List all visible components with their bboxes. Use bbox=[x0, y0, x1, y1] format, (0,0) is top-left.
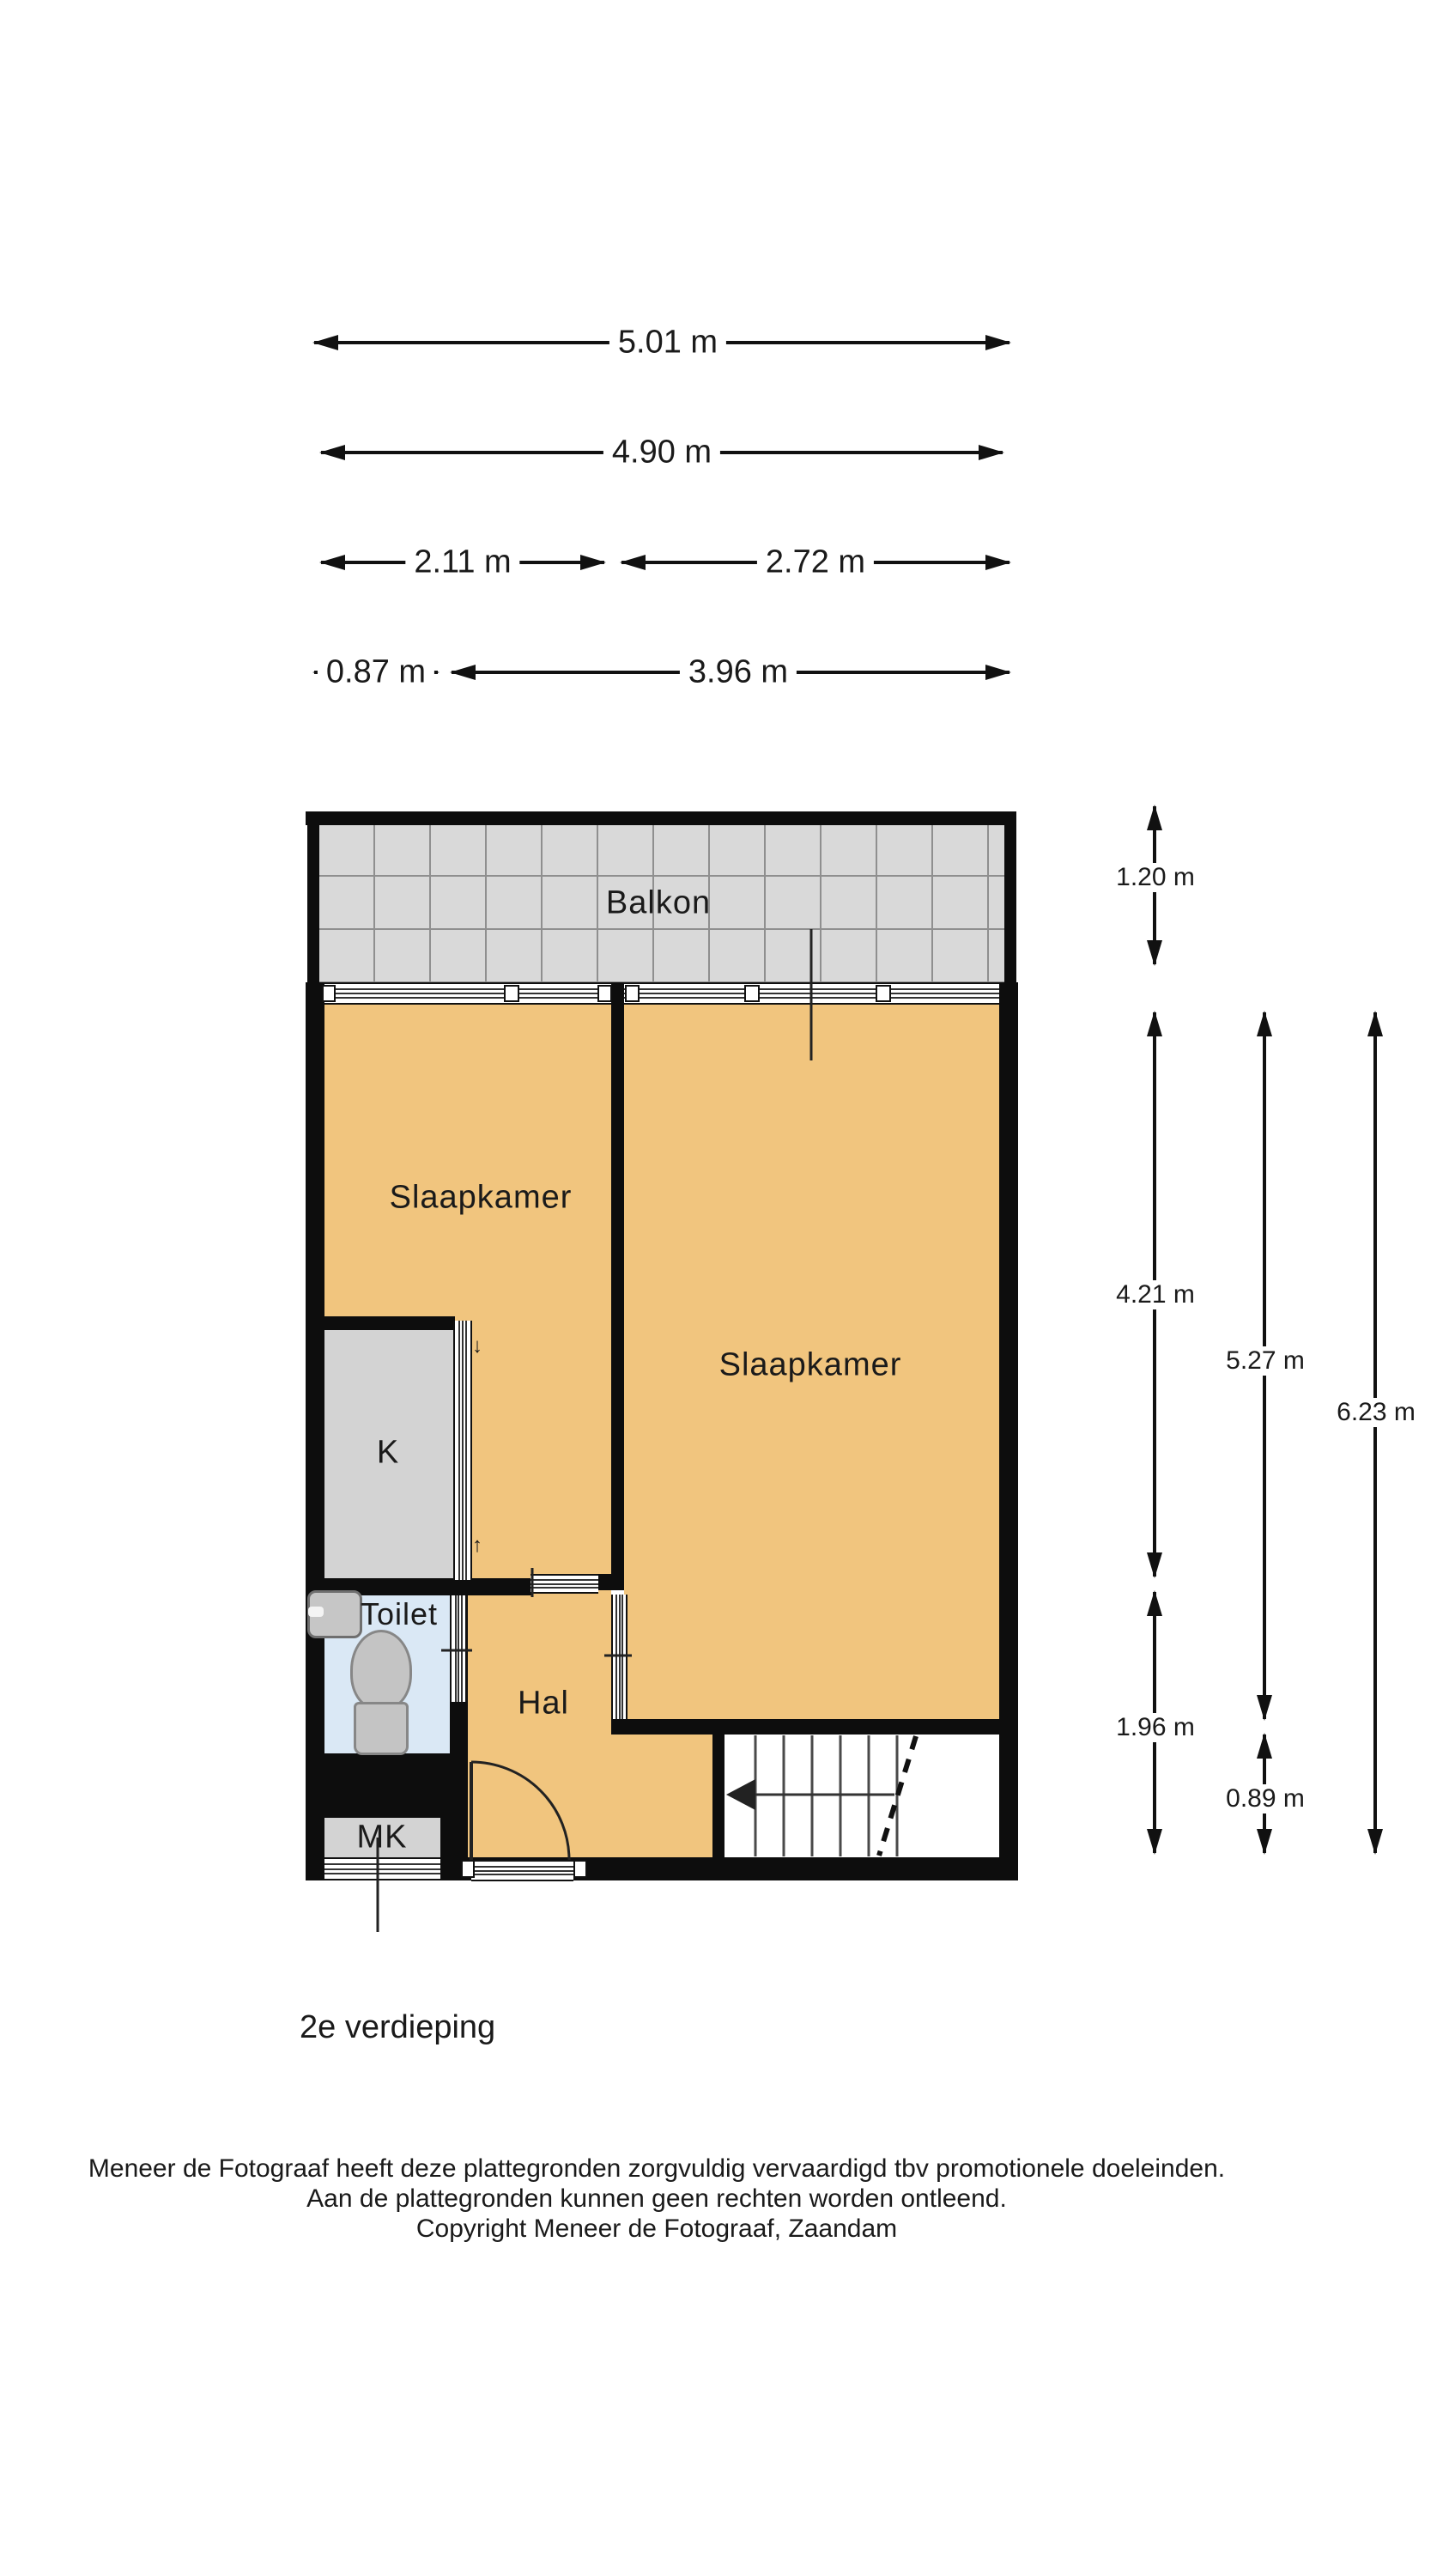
toilet-door bbox=[450, 1595, 467, 1702]
wall-stairs-left bbox=[712, 1735, 724, 1857]
toilet-bowl-icon bbox=[350, 1630, 412, 1710]
dim-label-bedroom-left-width: 2.11 m bbox=[405, 544, 519, 581]
meterkast-vent bbox=[324, 1857, 440, 1880]
room-label-balkon: Balkon bbox=[606, 885, 711, 922]
dim-label-bedroom-depth: 4.21 m bbox=[1107, 1280, 1203, 1309]
bedroom-left-door bbox=[530, 1574, 598, 1594]
dim-label-inner-width: 4.90 m bbox=[603, 434, 720, 471]
window-mullion bbox=[625, 985, 640, 1002]
door-swing-mark-down: ↓ bbox=[472, 1334, 482, 1358]
wall-balcony-left bbox=[307, 811, 319, 1001]
dim-label-total-width: 5.01 m bbox=[609, 325, 726, 361]
balcony-window-right bbox=[624, 982, 999, 1005]
dim-depth-total bbox=[1366, 1011, 1385, 1855]
room-label-slaapkamer-left: Slaapkamer bbox=[390, 1180, 573, 1217]
room-label-toilet: Toilet bbox=[361, 1596, 438, 1632]
wall-bedroom-right-bottom bbox=[611, 1719, 1018, 1735]
door-swing-mark-up: ↑ bbox=[472, 1534, 482, 1558]
dim-label-bedroom-right-width: 2.72 m bbox=[757, 544, 874, 581]
footer-disclaimer: Meneer de Fotograaf heeft deze plattegro… bbox=[0, 2154, 1313, 2244]
dim-label-service-width: 0.87 m bbox=[318, 654, 434, 691]
footer-line-2: Aan de plattegronden kunnen geen rechten… bbox=[0, 2184, 1313, 2214]
room-label-kast: K bbox=[377, 1435, 399, 1472]
dim-label-balcony-depth: 1.20 m bbox=[1107, 863, 1203, 892]
wall-between-bedrooms bbox=[611, 982, 624, 1590]
floorplan-page: 5.01 m 4.90 m 2.11 m 2.72 m 0.87 m 3.96 … bbox=[0, 0, 1449, 2576]
room-label-hal: Hal bbox=[518, 1686, 569, 1722]
wall-meterkast-right bbox=[440, 1818, 468, 1857]
wall-closet-top bbox=[306, 1316, 455, 1330]
dim-label-bedroom-right-depth: 5.27 m bbox=[1217, 1346, 1313, 1376]
hall-floor-lower bbox=[468, 1735, 712, 1857]
footer-line-1: Meneer de Fotograaf heeft deze plattegro… bbox=[0, 2154, 1313, 2184]
staircase-floor bbox=[724, 1735, 999, 1857]
bedroom-right-door bbox=[611, 1595, 627, 1719]
dim-label-hall-side-width: 3.96 m bbox=[680, 654, 797, 691]
window-mullion bbox=[504, 985, 519, 1002]
wall-balcony-right bbox=[1004, 811, 1016, 1001]
footer-line-3: Copyright Meneer de Fotograaf, Zaandam bbox=[0, 2214, 1313, 2244]
balcony-window-left bbox=[324, 982, 611, 1005]
window-mullion bbox=[876, 985, 891, 1002]
wall-balcony-top bbox=[306, 811, 1016, 825]
sink-icon bbox=[307, 1590, 362, 1638]
front-door-jamb bbox=[461, 1860, 475, 1878]
bedroom-left-floor bbox=[324, 1001, 611, 1316]
floor-title: 2e verdieping bbox=[300, 2009, 495, 2046]
wall-hall-top-stub bbox=[597, 1574, 611, 1590]
wall-service-band bbox=[306, 1753, 468, 1818]
wall-left bbox=[306, 982, 324, 1880]
dim-label-stairs-depth: 0.89 m bbox=[1217, 1784, 1313, 1814]
room-label-slaapkamer-right: Slaapkamer bbox=[719, 1347, 902, 1384]
toilet-base-icon bbox=[354, 1702, 409, 1755]
window-mullion bbox=[322, 985, 336, 1002]
dim-label-total-depth: 6.23 m bbox=[1328, 1398, 1424, 1427]
front-door-opening bbox=[471, 1860, 573, 1881]
dim-label-hall-depth: 1.96 m bbox=[1107, 1713, 1203, 1742]
closet-k-door bbox=[453, 1321, 472, 1580]
window-mullion bbox=[597, 985, 612, 1002]
wall-right bbox=[999, 982, 1018, 1880]
front-door-jamb bbox=[573, 1860, 587, 1878]
window-mullion bbox=[744, 985, 760, 1002]
room-label-meterkast: MK bbox=[357, 1820, 408, 1856]
